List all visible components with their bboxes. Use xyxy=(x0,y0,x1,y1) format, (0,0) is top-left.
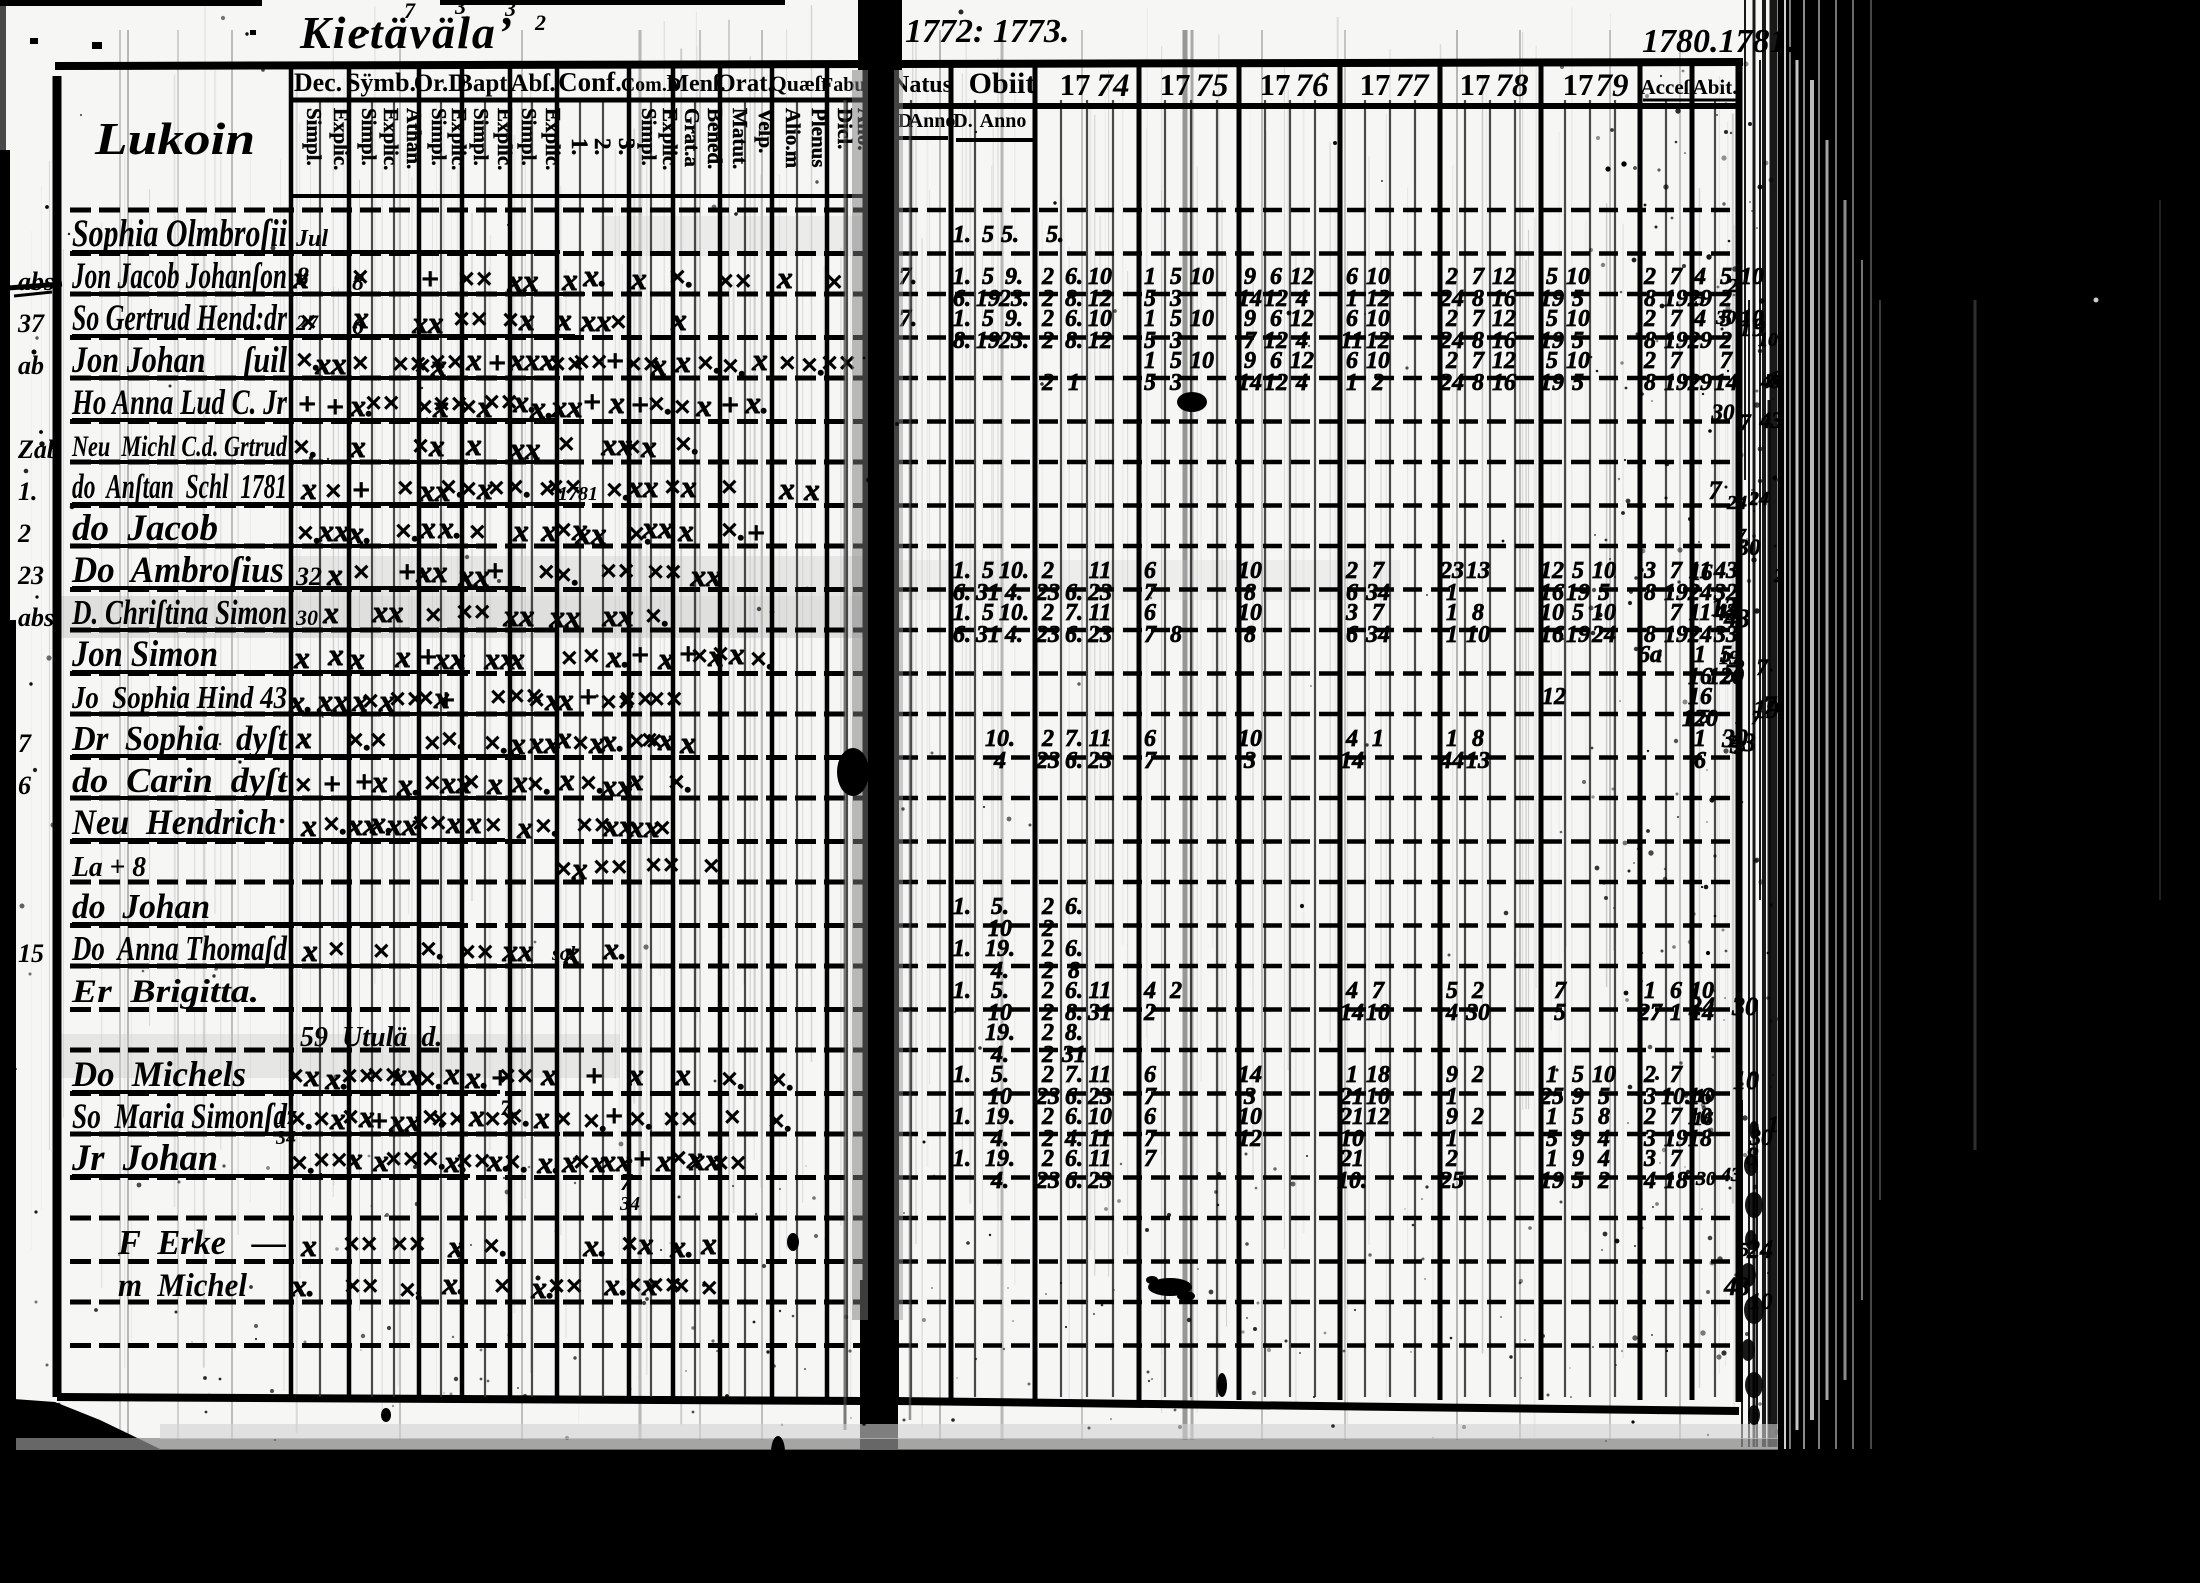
svg-text:Anno: Anno xyxy=(909,110,956,132)
svg-text:5: 5 xyxy=(1695,288,1705,310)
svg-text:××: ×× xyxy=(364,385,399,420)
svg-text:Neu Hendrich: Neu Hendrich xyxy=(71,802,277,842)
svg-text:+: + xyxy=(488,345,506,380)
svg-text:3: 3 xyxy=(1169,370,1182,396)
svg-text:5: 5 xyxy=(1144,370,1156,396)
svg-text:x: x xyxy=(512,513,529,548)
svg-text:×: × xyxy=(673,389,691,424)
svg-text:25: 25 xyxy=(1439,1168,1464,1194)
svg-text:2: 2 xyxy=(1597,1168,1610,1194)
svg-text:xx: xx xyxy=(509,431,541,466)
svg-text:Alio.m: Alio.m xyxy=(781,108,805,169)
svg-text:×: × xyxy=(609,304,627,339)
svg-text:x: x xyxy=(447,1229,464,1264)
svg-text:×.: ×. xyxy=(346,722,371,757)
svg-text:x: x xyxy=(679,725,696,760)
svg-text:+: + xyxy=(721,387,739,422)
svg-text:×.: ×. xyxy=(506,469,531,504)
svg-text:Lukoin: Lukoin xyxy=(94,113,255,164)
svg-text:×: × xyxy=(702,848,720,883)
svg-text:79: 79 xyxy=(1596,68,1629,104)
svg-text:1.: 1. xyxy=(953,894,971,920)
svg-text:×.: ×. xyxy=(419,931,444,966)
svg-text:xx: xx xyxy=(315,346,347,381)
svg-text:x.: x. xyxy=(605,639,629,674)
svg-text:8: 8 xyxy=(1170,622,1182,648)
svg-text:23: 23 xyxy=(17,561,44,590)
svg-text:x: x xyxy=(301,933,318,968)
svg-text:x: x xyxy=(677,513,694,548)
svg-text:×.: ×. xyxy=(644,598,669,633)
svg-text:×: × xyxy=(462,764,480,799)
svg-text:×.: ×. xyxy=(292,429,317,464)
svg-text:××: ×× xyxy=(343,1268,378,1303)
svg-text:16: 16 xyxy=(1540,622,1564,648)
svg-text:x: x xyxy=(555,302,572,337)
svg-text:×: × xyxy=(369,722,387,757)
svg-text:19: 19 xyxy=(1540,1168,1564,1194)
svg-text:+: + xyxy=(370,1103,388,1138)
svg-text:23: 23 xyxy=(1035,748,1060,774)
svg-text:16: 16 xyxy=(1693,1108,1713,1130)
svg-text:×.: ×. xyxy=(418,1061,443,1096)
svg-text:16: 16 xyxy=(1690,560,1714,585)
svg-text:×x: ×x xyxy=(640,722,673,757)
svg-text:7: 7 xyxy=(1144,748,1157,774)
svg-text:x.: x. xyxy=(602,931,626,966)
svg-text:Anno: Anno xyxy=(980,110,1027,132)
svg-text:So Gertrud Hend:dr: So Gertrud Hend:dr xyxy=(72,298,287,339)
svg-text:xx: xx xyxy=(642,510,674,545)
svg-text:×: × xyxy=(778,345,796,380)
svg-text:x: x xyxy=(371,764,388,799)
svg-text:17: 17 xyxy=(1160,67,1191,102)
svg-text:10: 10 xyxy=(1190,348,1214,374)
svg-text:8.: 8. xyxy=(953,328,971,354)
svg-text:24: 24 xyxy=(1591,622,1616,648)
svg-text:+: + xyxy=(323,766,341,801)
svg-text:+: + xyxy=(605,1098,623,1133)
svg-text:××: ×× xyxy=(646,554,681,589)
svg-text:x.: x. xyxy=(529,390,553,425)
svg-text:19: 19 xyxy=(1566,622,1590,648)
svg-text:x: x xyxy=(803,472,820,507)
svg-text:×x: ×x xyxy=(620,1226,653,1261)
svg-text:Explic.: Explic. xyxy=(379,108,403,170)
svg-text:24: 24 xyxy=(1688,992,1715,1021)
svg-text:×.: ×. xyxy=(668,259,693,294)
svg-text:6.: 6. xyxy=(953,622,971,648)
svg-text:x: x xyxy=(465,427,482,462)
svg-text:x: x xyxy=(630,261,647,296)
svg-text:10: 10 xyxy=(1695,1085,1715,1107)
svg-text:x: x xyxy=(465,342,482,377)
svg-text:1: 1 xyxy=(1372,726,1384,752)
svg-text:x: x xyxy=(468,1098,485,1133)
svg-text:7: 7 xyxy=(1709,476,1723,505)
svg-text:xx: xx xyxy=(575,516,607,551)
svg-text:×: × xyxy=(537,554,555,589)
svg-text:2.: 2. xyxy=(590,138,615,155)
svg-text:Sÿmb.: Sÿmb. xyxy=(346,68,416,97)
svg-text:17: 17 xyxy=(1360,67,1391,102)
svg-text:Er Brigitta.: Er Brigitta. xyxy=(71,974,259,1010)
svg-text:x: x xyxy=(700,1226,717,1261)
svg-text:3: 3 xyxy=(1243,748,1256,774)
svg-text:Obiit: Obiit xyxy=(969,67,1036,100)
svg-text:××: ×× xyxy=(342,1226,377,1261)
svg-text:2: 2 xyxy=(1727,275,1738,297)
svg-text:x: x xyxy=(443,1056,460,1091)
svg-text:2: 2 xyxy=(1143,1000,1156,1026)
svg-text:8: 8 xyxy=(1644,370,1656,396)
svg-text:×.: ×. xyxy=(674,426,699,461)
svg-text:x.: x. xyxy=(396,767,420,802)
svg-text:×.: ×. xyxy=(769,1062,794,1097)
svg-text:43: 43 xyxy=(1723,604,1750,633)
svg-text:x: x xyxy=(670,302,687,337)
svg-text:5.: 5. xyxy=(1046,222,1064,248)
svg-text:×: × xyxy=(327,931,345,966)
svg-text:Zab: Zab xyxy=(17,435,60,464)
svg-text:×: × xyxy=(484,807,502,842)
svg-text:+: + xyxy=(437,682,455,717)
svg-text:×: × xyxy=(372,933,390,968)
svg-text:14: 14 xyxy=(1714,370,1738,396)
svg-text:×.: ×. xyxy=(647,386,672,421)
svg-text:Jo Sophia Hind 43: Jo Sophia Hind 43 xyxy=(71,679,287,715)
svg-text:5: 5 xyxy=(1700,706,1710,728)
svg-text:×x: ×x xyxy=(411,428,444,463)
svg-text:x: x xyxy=(300,1228,317,1263)
svg-text:29: 29 xyxy=(1687,370,1712,396)
svg-text:4: 4 xyxy=(1295,370,1308,396)
svg-text:x: x xyxy=(394,639,411,674)
svg-text:1: 1 xyxy=(1446,622,1458,648)
svg-text:1780.1781.: 1780.1781. xyxy=(1642,23,1795,60)
svg-text:2: 2 xyxy=(17,519,31,548)
svg-text:34: 34 xyxy=(1365,622,1390,648)
svg-text:×: × xyxy=(352,554,370,589)
svg-text:××: ×× xyxy=(430,1101,465,1136)
svg-text:+: + xyxy=(585,1058,603,1093)
svg-text:x.: x. xyxy=(582,258,606,293)
svg-text:x.: x. xyxy=(536,1145,560,1180)
svg-text:10: 10 xyxy=(1366,1000,1390,1026)
svg-text:×x: ×x xyxy=(663,469,696,504)
svg-text:7: 7 xyxy=(404,0,416,23)
svg-text:43: 43 xyxy=(1720,1164,1741,1186)
svg-text:+: + xyxy=(326,389,344,424)
svg-text:23: 23 xyxy=(1087,1168,1112,1194)
svg-text:×.: ×. xyxy=(554,557,579,592)
svg-text:30: 30 xyxy=(1715,307,1736,329)
svg-text:18: 18 xyxy=(1664,1168,1688,1194)
svg-text:×.: ×. xyxy=(696,345,721,380)
svg-text:×.: ×. xyxy=(582,1103,607,1138)
svg-text:x: x xyxy=(300,808,317,843)
svg-text:32: 32 xyxy=(295,562,322,591)
svg-text:17: 17 xyxy=(1060,67,1091,102)
svg-text:8: 8 xyxy=(1472,370,1484,396)
svg-text:x: x xyxy=(563,935,580,970)
svg-text:6: 6 xyxy=(18,771,31,800)
svg-text:×: × xyxy=(351,259,369,294)
svg-text:F Erke —: F Erke — xyxy=(117,1223,286,1262)
svg-text:xx: xx xyxy=(503,598,535,633)
svg-text:×: × xyxy=(653,810,671,845)
svg-text:×: × xyxy=(396,470,414,505)
svg-text:×.: ×. xyxy=(505,1098,530,1133)
svg-text:×: × xyxy=(294,767,312,802)
svg-text:xx: xx xyxy=(627,469,659,504)
svg-text:×.: ×. xyxy=(483,725,508,760)
svg-text:6.: 6. xyxy=(1065,748,1083,774)
svg-text:××: ×× xyxy=(599,553,634,588)
svg-text:x: x xyxy=(349,429,366,464)
svg-text:x: x xyxy=(674,1057,691,1092)
svg-text:5: 5 xyxy=(1730,730,1743,759)
svg-text:+: + xyxy=(486,553,504,588)
svg-text:10.: 10. xyxy=(1337,1168,1367,1194)
svg-text:78: 78 xyxy=(1496,68,1529,104)
svg-text:×x: ×x xyxy=(571,725,604,760)
svg-text:×: × xyxy=(825,264,843,299)
svg-text:Do Anna Thomaſd: Do Anna Thomaſd xyxy=(71,929,287,968)
svg-text:Do Ambroſius: Do Ambroſius xyxy=(71,550,284,591)
svg-text:+: + xyxy=(421,261,439,296)
svg-text:Dec.: Dec. xyxy=(294,68,342,97)
svg-text:Explic.: Explic. xyxy=(329,108,353,170)
svg-text:×: × xyxy=(351,345,369,380)
svg-text:×.: ×. xyxy=(534,808,559,843)
svg-text:1772: 1773.: 1772: 1773. xyxy=(905,13,1069,50)
svg-text:+: + xyxy=(355,764,373,799)
svg-text:D.: D. xyxy=(953,110,972,132)
svg-text:13: 13 xyxy=(1466,748,1490,774)
svg-text:Athan.: Athan. xyxy=(402,108,426,169)
svg-text:5: 5 xyxy=(1572,1168,1584,1194)
svg-text:×.: ×. xyxy=(322,806,347,841)
svg-text:12: 12 xyxy=(1238,1126,1262,1152)
svg-text:44: 44 xyxy=(1439,748,1464,774)
svg-text:23: 23 xyxy=(1087,748,1112,774)
svg-text:××: ×× xyxy=(482,384,517,419)
svg-text:75: 75 xyxy=(1196,68,1229,104)
svg-text:x.: x. xyxy=(600,723,624,758)
svg-text:xx: xx xyxy=(507,263,539,298)
svg-text:x.: x. xyxy=(464,1060,488,1095)
svg-text:Simpl.: Simpl. xyxy=(517,108,541,166)
svg-text:17: 17 xyxy=(1260,67,1291,102)
svg-text:19: 19 xyxy=(976,328,1000,354)
svg-text:4: 4 xyxy=(993,748,1006,774)
svg-text:×: × xyxy=(672,1268,690,1303)
svg-text:××: ×× xyxy=(644,847,679,882)
svg-text:23: 23 xyxy=(1035,622,1060,648)
svg-text:7: 7 xyxy=(1736,525,1747,547)
svg-text:+: + xyxy=(583,384,601,419)
svg-text:1.: 1. xyxy=(953,936,971,962)
svg-text:×x: ×x xyxy=(554,851,587,886)
svg-text:xx: xx xyxy=(690,558,722,593)
svg-text:Explic.: Explic. xyxy=(658,108,682,170)
svg-text:×.: ×. xyxy=(526,766,551,801)
svg-text:12: 12 xyxy=(1366,1104,1390,1130)
svg-text:29: 29 xyxy=(1687,328,1712,354)
svg-text:x: x xyxy=(295,720,312,755)
svg-text:xx: xx xyxy=(549,599,581,634)
svg-text:x.: x. xyxy=(288,684,312,719)
svg-text:××: ×× xyxy=(312,1142,347,1177)
svg-text:×: × xyxy=(489,679,507,714)
svg-text:xx: xx xyxy=(434,641,466,676)
svg-text:17: 17 xyxy=(1460,67,1491,102)
svg-text:x: x xyxy=(352,300,369,335)
svg-text:x: x xyxy=(751,342,768,377)
svg-text:×.: ×. xyxy=(394,513,419,548)
svg-text:×: × xyxy=(560,640,578,675)
svg-text:×.: ×. xyxy=(440,721,465,756)
svg-text:Neu Michl C.d. Grtrud: Neu Michl C.d. Grtrud xyxy=(71,430,287,463)
svg-text:2: 2 xyxy=(534,10,546,35)
svg-text:×: × xyxy=(700,1270,718,1305)
svg-text:x: x xyxy=(533,1100,550,1135)
svg-text:xx: xx xyxy=(600,1143,632,1178)
svg-text:×: × xyxy=(423,725,441,760)
svg-text:4.: 4. xyxy=(990,1168,1009,1194)
svg-text:m Michel: m Michel xyxy=(118,1268,248,1304)
svg-text:xx: xx xyxy=(528,725,560,760)
svg-text:xx: xx xyxy=(458,558,490,593)
svg-text:30: 30 xyxy=(1695,1168,1716,1190)
svg-text:+: + xyxy=(631,637,649,672)
svg-text:2: 2 xyxy=(1371,370,1384,396)
svg-text:×.: ×. xyxy=(667,764,692,799)
svg-text:5: 5 xyxy=(1572,370,1584,396)
svg-text:6: 6 xyxy=(1694,748,1706,774)
svg-text:x.: x. xyxy=(437,510,461,545)
svg-text:×: × xyxy=(554,1101,572,1136)
svg-text:××: ×× xyxy=(455,1143,490,1178)
svg-text:1.: 1. xyxy=(953,978,971,1004)
svg-text:do Carin dyſt: do Carin dyſt xyxy=(72,761,288,800)
svg-text:××: ×× xyxy=(455,594,490,629)
svg-text:1.: 1. xyxy=(953,1104,971,1130)
svg-text:37: 37 xyxy=(17,309,45,338)
svg-text:Simpl.: Simpl. xyxy=(302,108,326,166)
svg-text:+: + xyxy=(398,554,416,589)
svg-text:x: x xyxy=(674,344,691,379)
svg-text:30: 30 xyxy=(295,605,318,630)
svg-text:1: 1 xyxy=(1670,1000,1682,1026)
svg-text:Explic.: Explic. xyxy=(447,108,471,170)
svg-text:30: 30 xyxy=(1711,400,1736,425)
svg-text:xx: xx xyxy=(602,598,634,633)
svg-text:×: × xyxy=(720,469,738,504)
svg-text:××: ×× xyxy=(547,1268,582,1303)
svg-text:14: 14 xyxy=(1238,370,1262,396)
svg-text:x: x xyxy=(508,641,525,676)
svg-text:×: × xyxy=(468,514,486,549)
svg-text:19: 19 xyxy=(1664,622,1688,648)
svg-text:x: x xyxy=(540,1057,557,1092)
svg-text:6.: 6. xyxy=(1065,622,1083,648)
svg-text:So Maria Simonſd: So Maria Simonſd xyxy=(72,1096,288,1136)
svg-text:8: 8 xyxy=(1244,622,1256,648)
svg-text:15: 15 xyxy=(18,939,44,968)
svg-text:abs: abs xyxy=(18,603,54,632)
svg-text:xx: xx xyxy=(318,513,350,548)
svg-text:x: x xyxy=(300,471,317,506)
svg-text:xx: xx xyxy=(416,554,448,589)
svg-text:x: x xyxy=(557,682,574,717)
svg-text:x: x xyxy=(419,510,436,545)
svg-text:××: ×× xyxy=(711,1145,746,1180)
svg-text:×: × xyxy=(723,1099,741,1134)
svg-text:5: 5 xyxy=(1554,1000,1566,1026)
svg-text:x: x xyxy=(516,810,533,845)
svg-text:27: 27 xyxy=(1637,1000,1663,1026)
svg-text:Bened.: Bened. xyxy=(703,108,727,169)
svg-text:x: x xyxy=(322,595,339,630)
svg-text:Jr Johan: Jr Johan xyxy=(71,1138,218,1179)
svg-text:+: + xyxy=(633,1141,651,1176)
svg-text:77: 77 xyxy=(1396,68,1431,104)
svg-text:××: ×× xyxy=(546,469,581,504)
svg-text:Grat.a: Grat.a xyxy=(680,108,704,167)
svg-text:10: 10 xyxy=(1190,306,1214,332)
svg-text:14: 14 xyxy=(1340,748,1364,774)
svg-text:10: 10 xyxy=(1466,622,1490,648)
svg-text:+: + xyxy=(606,343,624,378)
svg-text:x: x xyxy=(627,1057,644,1092)
svg-text:×x: ×x xyxy=(623,429,656,464)
svg-text:1.: 1. xyxy=(18,477,38,506)
svg-text:24: 24 xyxy=(1439,370,1464,396)
svg-text:59 Utulä d.: 59 Utulä d. xyxy=(300,1022,442,1053)
svg-text:x: x xyxy=(511,764,528,799)
svg-text:x.: x. xyxy=(441,1266,465,1301)
svg-text:Simpl.: Simpl. xyxy=(637,108,661,166)
svg-text:31: 31 xyxy=(1087,1000,1112,1026)
svg-text:×.: ×. xyxy=(398,1272,423,1307)
svg-text:Simpl.: Simpl. xyxy=(469,108,493,166)
svg-text:+: + xyxy=(747,515,765,550)
svg-text:Jul: Jul xyxy=(295,226,328,252)
svg-text:14: 14 xyxy=(1340,1000,1364,1026)
svg-text:Matut.: Matut. xyxy=(728,108,752,169)
svg-text:12: 12 xyxy=(1542,684,1566,710)
svg-text:16: 16 xyxy=(1492,370,1516,396)
svg-text:Explic.: Explic. xyxy=(541,108,565,170)
svg-text:××: ×× xyxy=(458,934,493,969)
svg-text:13: 13 xyxy=(1466,558,1490,584)
svg-text:5: 5 xyxy=(1724,659,1737,688)
svg-text:x: x xyxy=(778,471,795,506)
svg-text:8: 8 xyxy=(1644,580,1656,606)
svg-text:x: x xyxy=(561,262,578,297)
svg-text:x: x xyxy=(608,385,625,420)
svg-text:×x: ×x xyxy=(527,682,560,717)
svg-text:×x: ×x xyxy=(286,1058,319,1093)
svg-text:6.: 6. xyxy=(1065,1168,1083,1194)
svg-text:Sophia Olmbroſii: Sophia Olmbroſii xyxy=(72,212,287,255)
svg-text:4.: 4. xyxy=(1004,622,1023,648)
svg-text:Plenus: Plenus xyxy=(807,108,831,168)
svg-text:Conf.: Conf. xyxy=(558,67,622,97)
svg-text:3.: 3. xyxy=(614,138,639,155)
